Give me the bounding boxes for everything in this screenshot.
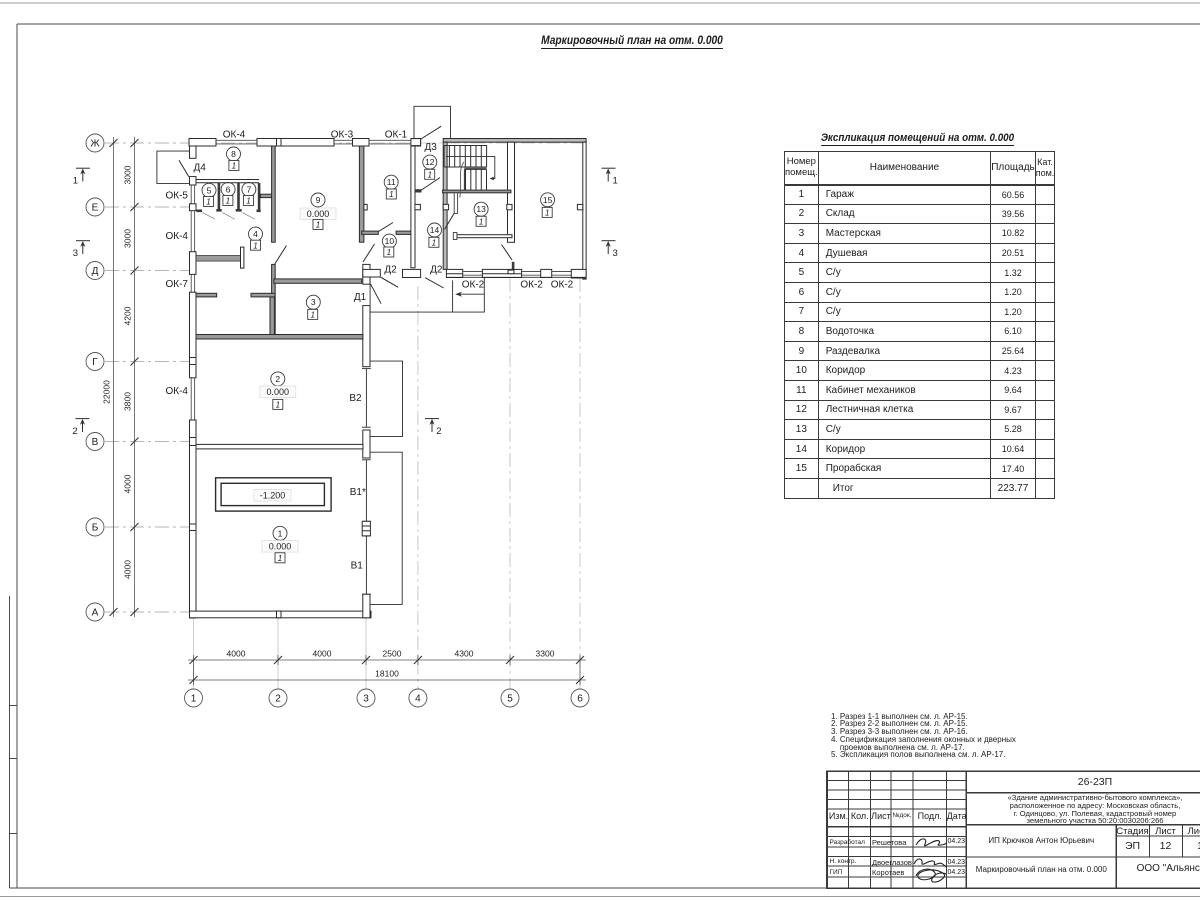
svg-text:3800: 3800 <box>123 392 133 411</box>
svg-text:3300: 3300 <box>536 649 555 659</box>
svg-text:5: 5 <box>207 185 212 195</box>
svg-text:9: 9 <box>316 195 321 205</box>
svg-text:1: 1 <box>226 197 230 206</box>
svg-text:В1*: В1* <box>350 487 366 498</box>
svg-text:0.000: 0.000 <box>307 209 330 219</box>
svg-text:11: 11 <box>387 177 396 187</box>
svg-text:3: 3 <box>73 248 78 259</box>
svg-text:13: 13 <box>476 204 486 214</box>
svg-text:-1.200: -1.200 <box>260 491 286 501</box>
svg-text:ОК-5: ОК-5 <box>166 191 189 202</box>
svg-text:22000: 22000 <box>102 380 112 404</box>
svg-text:1: 1 <box>73 176 78 187</box>
svg-text:1: 1 <box>310 311 314 320</box>
svg-text:2: 2 <box>436 426 441 437</box>
svg-text:7: 7 <box>247 184 252 194</box>
svg-text:12: 12 <box>425 157 435 167</box>
svg-text:Ж: Ж <box>90 139 100 150</box>
svg-text:1: 1 <box>253 241 257 250</box>
svg-text:4000: 4000 <box>123 560 133 579</box>
svg-text:1: 1 <box>389 190 393 199</box>
svg-text:4: 4 <box>415 694 421 705</box>
svg-text:1: 1 <box>613 176 618 187</box>
svg-text:ОК-1: ОК-1 <box>385 130 408 141</box>
svg-text:ОК-3: ОК-3 <box>331 130 354 141</box>
svg-text:Б: Б <box>92 523 99 534</box>
svg-text:А: А <box>92 608 99 619</box>
svg-text:1: 1 <box>387 248 391 257</box>
svg-text:1: 1 <box>246 197 250 206</box>
svg-text:Д: Д <box>92 266 99 277</box>
svg-text:1: 1 <box>232 162 236 171</box>
svg-text:Д2: Д2 <box>430 265 443 276</box>
svg-text:1: 1 <box>191 694 197 705</box>
svg-text:10: 10 <box>385 236 395 246</box>
svg-text:3000: 3000 <box>123 165 133 184</box>
svg-text:Г: Г <box>92 357 98 368</box>
svg-text:ОК-4: ОК-4 <box>166 231 189 242</box>
svg-text:1: 1 <box>427 171 431 180</box>
svg-text:4000: 4000 <box>227 649 246 659</box>
svg-text:0.000: 0.000 <box>269 542 292 552</box>
svg-text:0.000: 0.000 <box>267 387 290 397</box>
svg-text:1: 1 <box>276 401 280 410</box>
svg-text:6: 6 <box>226 184 231 194</box>
svg-text:2: 2 <box>275 374 280 384</box>
svg-text:3: 3 <box>613 248 618 259</box>
svg-text:2: 2 <box>72 426 77 437</box>
svg-text:8: 8 <box>231 149 236 159</box>
svg-text:ОК-2: ОК-2 <box>520 280 543 291</box>
svg-text:ОК-2: ОК-2 <box>551 280 574 291</box>
svg-text:3000: 3000 <box>123 229 133 248</box>
svg-text:4000: 4000 <box>313 649 332 659</box>
svg-text:2500: 2500 <box>383 649 402 659</box>
svg-text:1: 1 <box>206 198 210 207</box>
svg-text:ОК-2: ОК-2 <box>462 280 485 291</box>
svg-text:В1: В1 <box>351 561 364 572</box>
svg-text:18100: 18100 <box>375 669 399 679</box>
svg-text:1: 1 <box>479 218 483 227</box>
svg-text:ОК-4: ОК-4 <box>223 130 246 141</box>
svg-text:1: 1 <box>316 221 320 230</box>
svg-text:6: 6 <box>577 694 583 705</box>
svg-text:14: 14 <box>430 225 440 235</box>
svg-text:4200: 4200 <box>123 306 133 325</box>
svg-text:1: 1 <box>545 209 549 218</box>
svg-text:ОК-7: ОК-7 <box>166 279 189 290</box>
svg-text:4300: 4300 <box>455 649 474 659</box>
svg-text:Д4: Д4 <box>194 163 207 174</box>
svg-text:3: 3 <box>311 297 316 307</box>
svg-text:Д2: Д2 <box>384 264 397 275</box>
svg-text:1: 1 <box>278 528 283 538</box>
svg-text:4000: 4000 <box>123 474 133 493</box>
svg-text:1: 1 <box>432 239 436 248</box>
svg-text:В2: В2 <box>349 393 362 404</box>
svg-text:Е: Е <box>92 203 99 214</box>
svg-text:В: В <box>92 437 99 448</box>
svg-text:4: 4 <box>253 229 258 239</box>
svg-text:3: 3 <box>363 694 369 705</box>
svg-text:ОК-4: ОК-4 <box>166 386 189 397</box>
svg-text:Д3: Д3 <box>425 142 438 153</box>
svg-text:1: 1 <box>278 554 282 563</box>
svg-text:Д1: Д1 <box>354 292 367 303</box>
svg-text:15: 15 <box>543 195 553 205</box>
svg-text:2: 2 <box>275 694 281 705</box>
svg-text:5: 5 <box>507 694 513 705</box>
